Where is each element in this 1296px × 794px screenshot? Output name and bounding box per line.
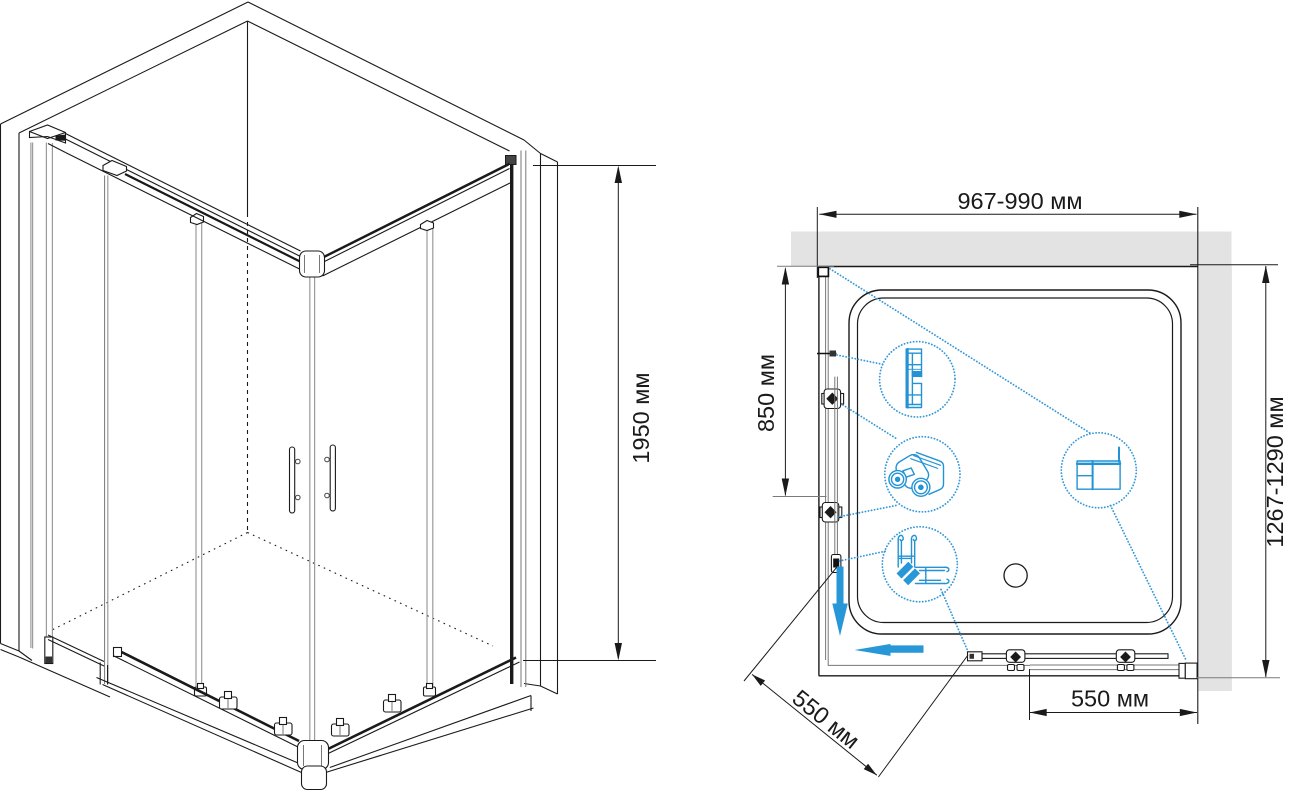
svg-text:850 мм: 850 мм [753, 354, 779, 432]
svg-text:1267-1290 мм: 1267-1290 мм [1262, 396, 1288, 547]
svg-text:550 мм: 550 мм [787, 685, 864, 754]
svg-text:1950 мм: 1950 мм [628, 372, 654, 463]
svg-text:967-990 мм: 967-990 мм [957, 188, 1082, 214]
svg-text:550 мм: 550 мм [1071, 686, 1149, 712]
